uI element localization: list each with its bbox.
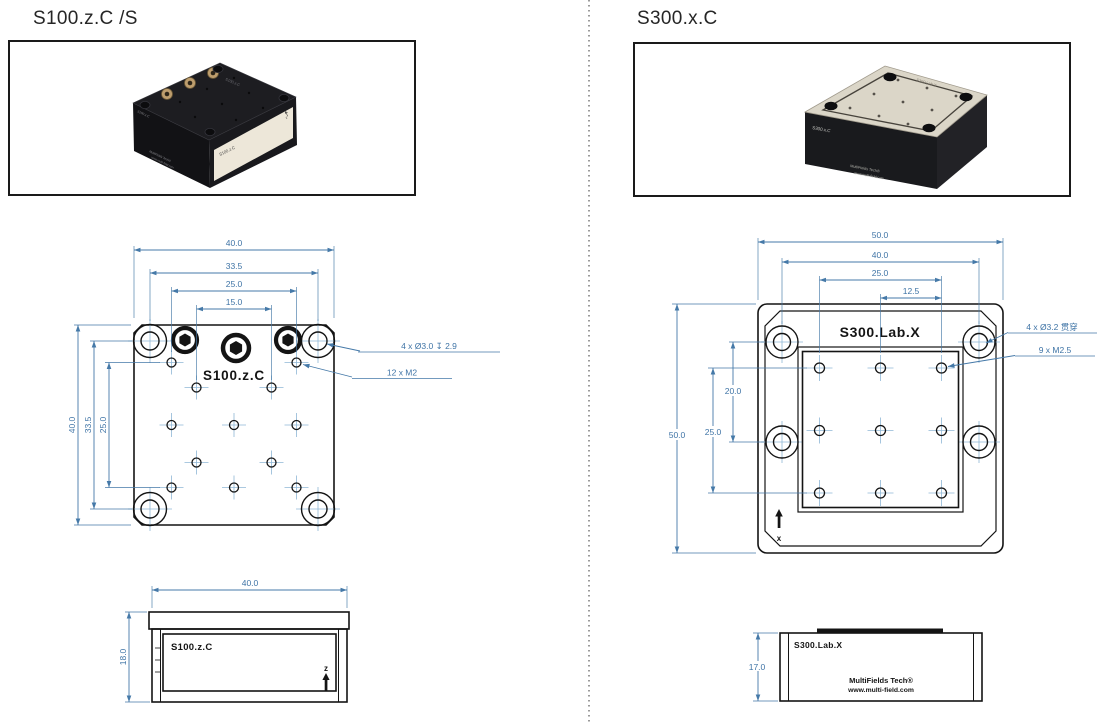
- product-photo-frame-s300: S300.Lab.X S300.x.C MultiFields Tech® ww…: [633, 42, 1071, 197]
- s100-side-top-plate: [149, 612, 349, 629]
- s300-side-label: S300.Lab.X: [794, 640, 842, 650]
- s100-top-view-drawing: S100.z.C 40.0 33.5 25.0 15.0 40.0 33.5 2…: [40, 233, 540, 565]
- s100-note-thread: 12 x M2: [303, 365, 452, 379]
- s300-dim-width-12-5: 12.5: [881, 286, 942, 353]
- svg-text:4 x Ø3.2 贯穿: 4 x Ø3.2 贯穿: [1026, 322, 1078, 332]
- svg-text:12.5: 12.5: [903, 286, 920, 296]
- column-divider: [588, 0, 590, 725]
- svg-text:17.0: 17.0: [749, 662, 766, 672]
- s100-corner-recess: [140, 101, 150, 108]
- s300-corner-hole: [884, 73, 897, 82]
- s100-screw-socket: [165, 92, 170, 97]
- s100-note-counterbore: 4 x Ø3.0 ↧ 2.9: [327, 341, 500, 352]
- product-photo-s100: S100.z.C z S100.z.C S100.z.C MultiFields…: [10, 42, 414, 194]
- s300-corner-hole: [960, 93, 973, 102]
- s300-side-brand1: MultiFields Tech®: [849, 676, 913, 685]
- s300-top-view-drawing: S300.Lab.X x 50.0 40.0 25.0 12.5 50.0 25…: [645, 228, 1099, 612]
- s100-side-label: S100.z.C: [171, 642, 212, 653]
- s100-screw-socket: [188, 81, 193, 86]
- svg-text:12 x M2: 12 x M2: [387, 368, 418, 378]
- svg-text:25.0: 25.0: [872, 268, 889, 278]
- s300-corner-hole: [825, 102, 838, 111]
- s300-x-axis-mark: x: [775, 509, 783, 543]
- s100-dim-height-25: 25.0: [98, 363, 160, 488]
- s300-device-render: S300.Lab.X S300.x.C MultiFields Tech® ww…: [805, 66, 987, 189]
- svg-text:33.5: 33.5: [83, 416, 93, 433]
- svg-text:25.0: 25.0: [226, 279, 243, 289]
- s100-side-dim-height: 18.0: [118, 612, 150, 702]
- svg-text:40.0: 40.0: [872, 250, 889, 260]
- s300-side-view-drawing: S300.Lab.X MultiFields Tech® www.multi-f…: [735, 612, 1099, 725]
- svg-text:25.0: 25.0: [705, 427, 722, 437]
- svg-text:40.0: 40.0: [67, 416, 77, 433]
- svg-text:x: x: [777, 534, 782, 543]
- s100-corner-recess: [205, 128, 215, 135]
- svg-text:50.0: 50.0: [872, 230, 889, 240]
- s300-side-brand2: www.multi-field.com: [847, 687, 914, 694]
- svg-text:25.0: 25.0: [98, 416, 108, 433]
- s100-side-ticks: [155, 648, 160, 672]
- svg-text:z: z: [324, 664, 328, 673]
- svg-text:50.0: 50.0: [669, 430, 686, 440]
- s100-side-view-drawing: 40.0 S100.z.C 18.0 z: [60, 576, 480, 725]
- page-title-s300: S300.x.C: [637, 8, 718, 30]
- product-photo-s300: S300.Lab.X S300.x.C MultiFields Tech® ww…: [635, 44, 1069, 195]
- s300-dim-height-25: 25.0: [699, 368, 807, 493]
- s100-z-axis-mark: z: [322, 664, 329, 691]
- product-photo-frame-s100: S100.z.C z S100.z.C S100.z.C MultiFields…: [8, 40, 416, 196]
- s100-corner-recess: [213, 65, 223, 72]
- page-title-s100: S100.z.C /S: [33, 8, 138, 30]
- svg-text:18.0: 18.0: [118, 648, 128, 665]
- s100-side-dim-width: 40.0: [152, 578, 347, 608]
- svg-text:40.0: 40.0: [242, 578, 259, 588]
- s300-corner-hole: [923, 124, 936, 133]
- s100-corner-recess: [279, 94, 289, 101]
- s100-device-render: S100.z.C z S100.z.C S100.z.C MultiFields…: [133, 63, 297, 188]
- svg-text:9 x M2.5: 9 x M2.5: [1039, 345, 1072, 355]
- svg-text:20.0: 20.0: [725, 386, 742, 396]
- svg-text:15.0: 15.0: [226, 297, 243, 307]
- s100-drawing-label: S100.z.C: [203, 368, 265, 383]
- s300-dim-width-50: 50.0: [758, 230, 1003, 300]
- svg-text:33.5: 33.5: [226, 261, 243, 271]
- s100-hex-screws: [173, 328, 300, 361]
- s300-drawing-label: S300.Lab.X: [840, 324, 921, 340]
- svg-text:40.0: 40.0: [226, 238, 243, 248]
- svg-text:4 x Ø3.0 ↧ 2.9: 4 x Ø3.0 ↧ 2.9: [401, 341, 457, 351]
- s300-side-dim-height: 17.0: [744, 633, 778, 701]
